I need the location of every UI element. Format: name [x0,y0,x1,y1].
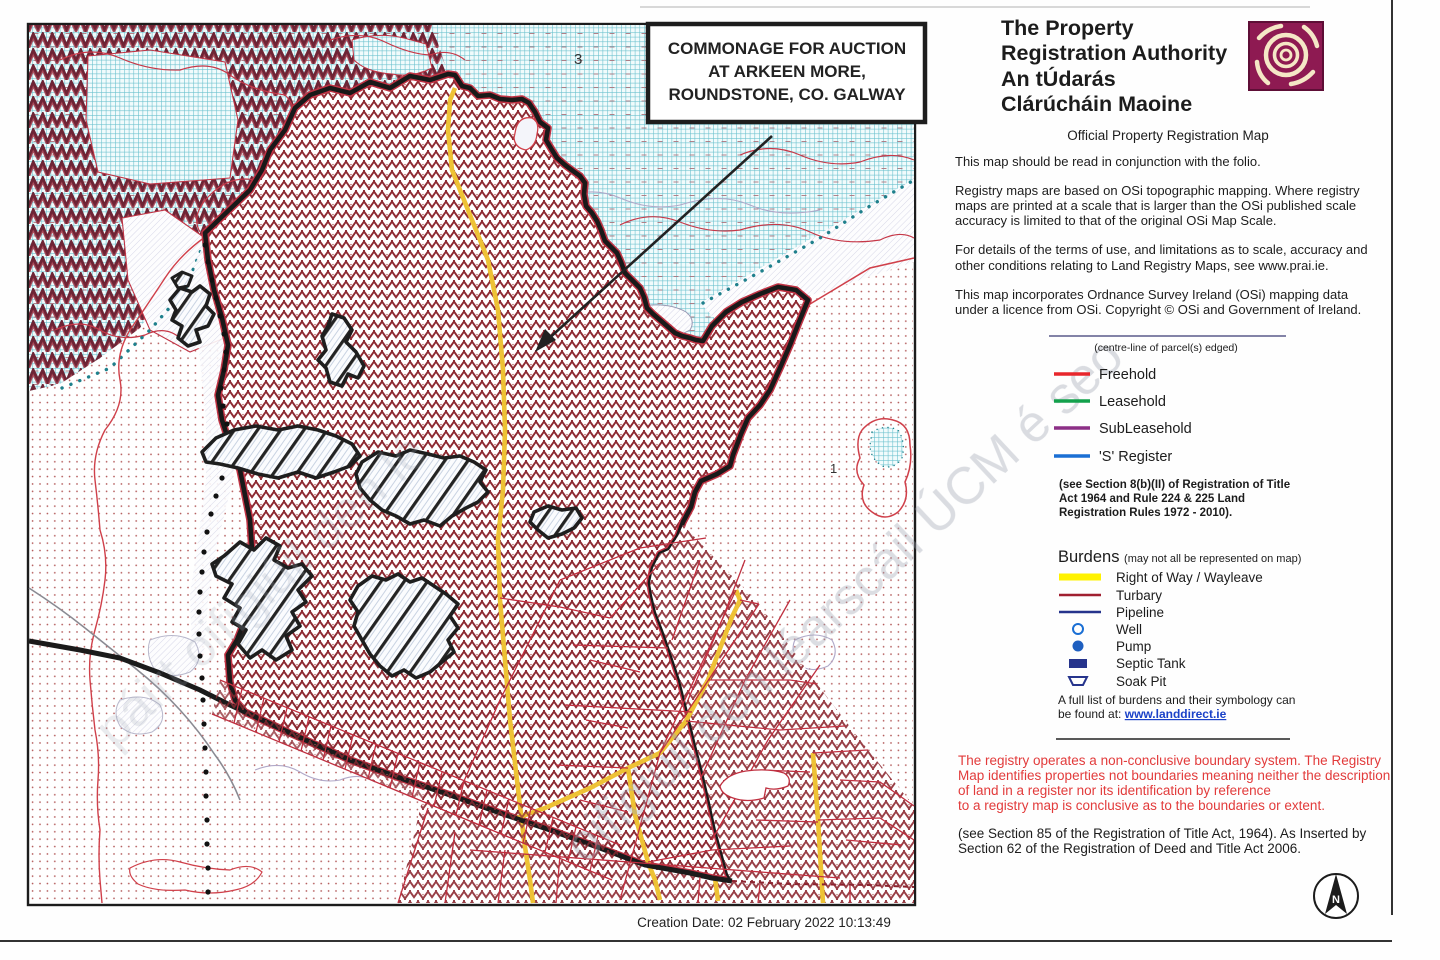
svg-text:'S' Register: 'S' Register [1099,449,1172,465]
svg-text:3: 3 [574,51,582,68]
svg-text:ROUNDSTONE, CO. GALWAY: ROUNDSTONE, CO. GALWAY [668,85,906,104]
svg-text:Soak Pit: Soak Pit [1116,674,1167,689]
svg-text:COMMONAGE FOR AUCTION: COMMONAGE FOR AUCTION [668,39,906,58]
svg-text:Right of Way / Wayleave: Right of Way / Wayleave [1116,570,1263,585]
svg-text:Pump: Pump [1116,639,1151,654]
svg-text:N: N [1332,894,1340,906]
svg-text:Official Property Registration: Official Property Registration Map [1067,128,1269,143]
svg-text:The registry operates a non-co: The registry operates a non-conclusive b… [958,753,1381,768]
svg-text:other conditions relating to L: other conditions relating to Land Regist… [955,258,1329,273]
svg-text:(see Section 8(b)(II) of Regis: (see Section 8(b)(II) of Registration of… [1059,479,1290,491]
svg-text:The Property: The Property [1001,16,1134,40]
svg-text:to a registry map is conclusiv: to a registry map is conclusive as to th… [958,798,1325,813]
svg-text:maps are printed at a scale th: maps are printed at a scale that is larg… [955,198,1356,213]
svg-text:Pipeline: Pipeline [1116,605,1164,620]
svg-text:A full list of burdens and the: A full list of burdens and their symbolo… [1058,693,1295,707]
svg-text:(centre-line of parcel(s) edge: (centre-line of parcel(s) edged) [1094,342,1238,354]
svg-text:of land in a register nor its: of land in a register nor its identifica… [958,783,1271,798]
svg-text:For details of the terms of us: For details of the terms of use, and lim… [955,242,1368,257]
svg-text:Map identifies properties not: Map identifies properties not boundaries… [958,768,1390,783]
svg-text:SubLeasehold: SubLeasehold [1099,421,1192,437]
svg-text:under a licence from OSi. Copy: under a licence from OSi. Copyright © OS… [955,302,1361,317]
svg-text:Registration Authority: Registration Authority [1001,41,1227,65]
svg-text:Well: Well [1116,622,1142,637]
svg-text:AT ARKEEN MORE,: AT ARKEEN MORE, [708,62,866,81]
svg-text:(see Section 85 of the Registr: (see Section 85 of the Registration of T… [958,826,1366,841]
svg-text:Freehold: Freehold [1099,367,1156,383]
svg-text:Clárúcháin Maoine: Clárúcháin Maoine [1001,92,1192,116]
svg-text:Leasehold: Leasehold [1099,394,1166,410]
svg-text:Section 62 of the Registration: Section 62 of the Registration of Deed a… [958,841,1301,856]
svg-text:Registry maps are based on OSi: Registry maps are based on OSi topograph… [955,183,1360,198]
svg-text:This map should be read in con: This map should be read in conjunction w… [955,154,1261,169]
svg-text:Septic Tank: Septic Tank [1116,656,1186,671]
svg-text:An tÚdarás: An tÚdarás [1001,66,1116,91]
svg-text:This map incorporates Ordnance: This map incorporates Ordnance Survey Ir… [955,287,1349,302]
svg-text:1: 1 [830,461,837,476]
svg-text:Creation Date: 02 February 202: Creation Date: 02 February 2022 10:13:49 [637,915,891,930]
svg-text:Act 1964 and Rule 224 & 225 La: Act 1964 and Rule 224 & 225 Land [1059,493,1245,505]
svg-text:Registration Rules 1972 - 2010: Registration Rules 1972 - 2010). [1059,507,1232,519]
svg-text:Turbary: Turbary [1116,588,1162,603]
svg-text:be found at: www.landdirect.ie: be found at: www.landdirect.ie [1058,707,1227,721]
svg-text:accuracy is limited to that of: accuracy is limited to that of the origi… [955,213,1277,228]
